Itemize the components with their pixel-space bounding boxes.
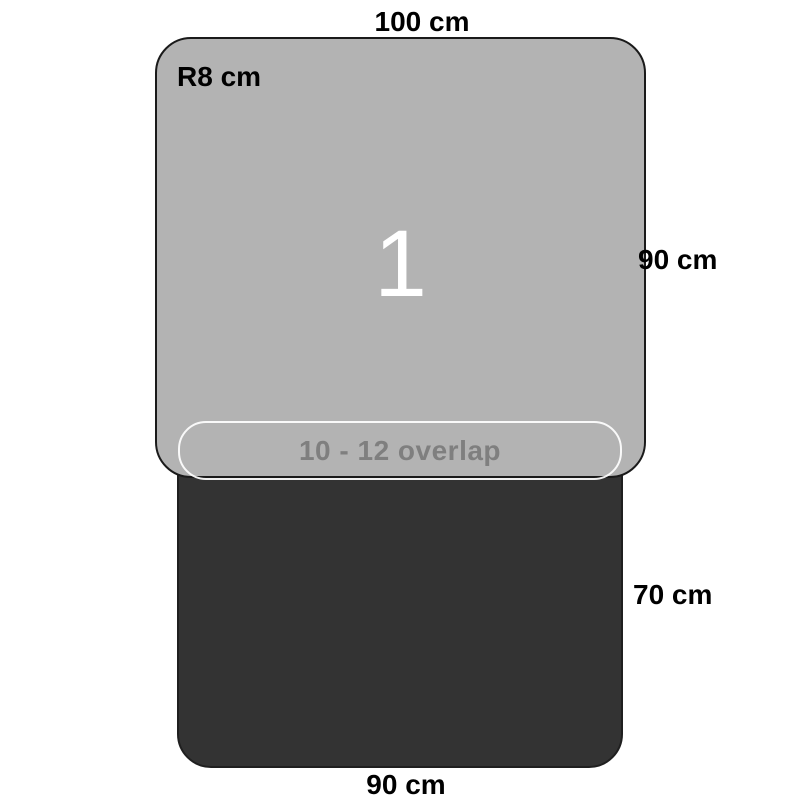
- mat1-gray-rectangle: [155, 37, 646, 478]
- overlap-label: 10 - 12 overlap: [299, 435, 501, 467]
- mat2-height-label: 70 cm: [633, 581, 763, 609]
- mat2-width-label: 90 cm: [346, 771, 466, 799]
- overlap-zone-outline: 10 - 12 overlap: [178, 421, 622, 480]
- diagram-canvas: 1 10 - 12 overlap 100 cm R8 cm 90 cm 70 …: [0, 0, 800, 800]
- corner-radius-label: R8 cm: [177, 63, 261, 91]
- mat1-width-label: 100 cm: [352, 8, 492, 36]
- mat1-height-label: 90 cm: [638, 246, 768, 274]
